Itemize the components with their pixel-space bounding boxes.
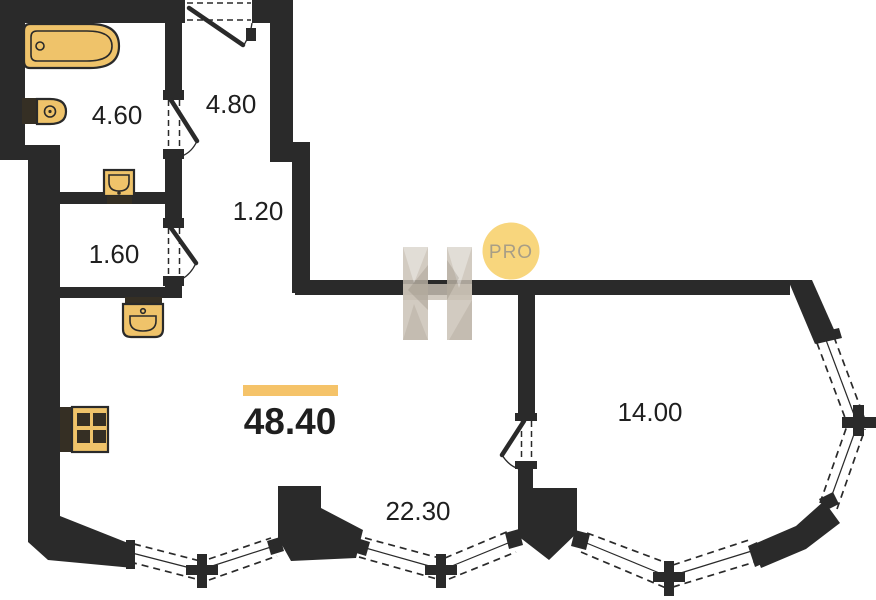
wall-hallway-right <box>270 0 310 293</box>
label-bathroom-area: 4.60 <box>92 100 143 130</box>
total-area-accent-bar <box>243 385 338 396</box>
toilet-icon <box>22 98 66 124</box>
label-wc-area: 1.60 <box>89 239 140 269</box>
windows <box>130 337 865 588</box>
pro-badge: PRO <box>483 223 540 280</box>
pro-badge-label: PRO <box>489 242 533 263</box>
floor-plan-canvas: PRO 4.60 4.80 1.20 1.60 48.40 22.30 14.0… <box>0 0 876 600</box>
pillar-center <box>518 488 577 560</box>
label-hallway-area: 4.80 <box>206 89 257 119</box>
wall-left <box>0 0 60 527</box>
pillar-left <box>278 486 363 561</box>
bathroom-door <box>169 100 198 156</box>
wall-interior <box>518 293 535 415</box>
wall-top <box>0 0 185 23</box>
bathtub-icon <box>24 24 119 68</box>
wall-wc-bottom <box>30 287 182 298</box>
label-total-area: 48.40 <box>244 401 337 442</box>
wall-elbow-bottomright <box>752 501 840 568</box>
kitchen-sink-icon <box>123 297 163 337</box>
entrance-door <box>187 3 252 45</box>
label-living-width: 22.30 <box>385 496 450 526</box>
label-corridor-width: 1.20 <box>233 196 284 226</box>
watermark-h-logo <box>403 247 472 340</box>
bathroom-sink-icon <box>104 170 134 204</box>
label-bedroom-area: 14.00 <box>617 397 682 427</box>
doors <box>169 3 532 469</box>
wc-door <box>169 228 197 279</box>
floor-plan: PRO 4.60 4.80 1.20 1.60 48.40 22.30 14.0… <box>0 0 876 600</box>
wall-diagonal-bottomleft <box>28 516 133 568</box>
wall-bedroom-top <box>295 280 790 295</box>
stove-icon <box>60 407 108 452</box>
